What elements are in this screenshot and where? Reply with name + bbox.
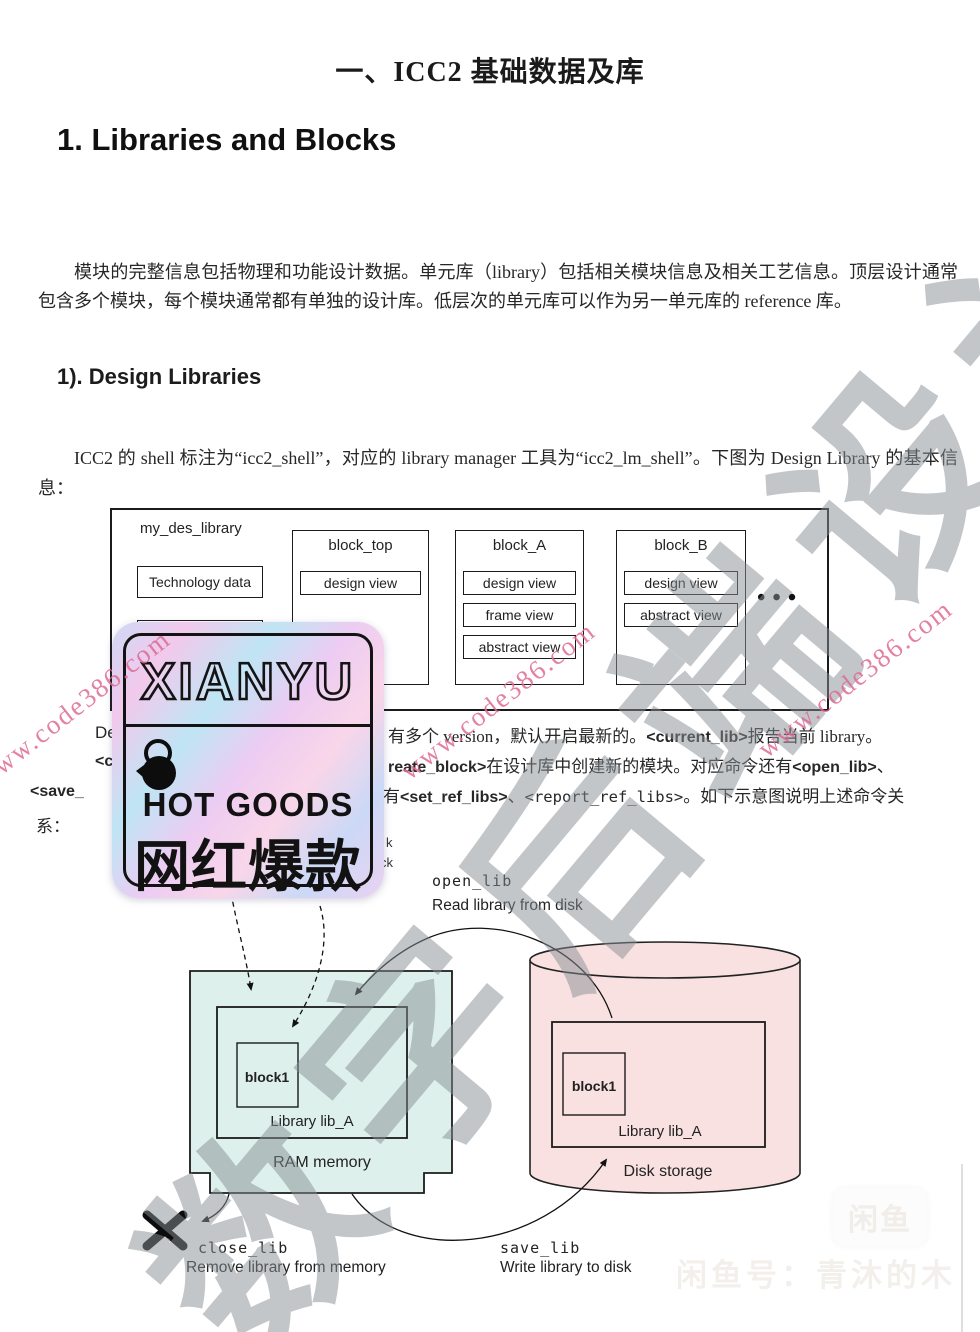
close-lib-desc: Remove library from memory [186, 1259, 386, 1276]
create-block-command: reate_block> [388, 759, 486, 776]
close-lib-command-label: close_lib [198, 1239, 288, 1257]
block-b-box: block_B design view abstract view [616, 530, 746, 685]
para3-text: 有多个 version，默认开启最新的。 [388, 727, 646, 746]
technology-data-box: Technology data [137, 566, 263, 598]
page-edge-line [961, 1164, 963, 1332]
kettle-icon [134, 733, 186, 793]
para3-line3-right: 有<set_ref_libs>、<report_ref_libs>。如下示意图说… [383, 782, 904, 807]
view-box: abstract view [624, 603, 738, 627]
set-ref-libs-command: <set_ref_libs> [400, 789, 508, 806]
xianyu-id-watermark: 闲鱼号：青沐的木 [676, 1250, 956, 1295]
close-x-icon [147, 1215, 183, 1246]
block-a-box: block_A design view frame view abstract … [455, 530, 584, 685]
document-page: 一、ICC2 基础数据及库 1. Libraries and Blocks 模块… [0, 0, 980, 1332]
sticker-brand-text: XIANYU [126, 644, 370, 720]
disk-cylinder-body [530, 960, 800, 1193]
occluded-label-fragment: k [386, 835, 393, 850]
para3-line4: 系： [36, 812, 70, 837]
current-lib-command: <current_lib> [646, 729, 747, 746]
view-box: design view [300, 571, 421, 595]
block-title: block_top [293, 537, 428, 554]
close-lib-arrow [203, 1194, 229, 1221]
block-title: block_A [456, 537, 583, 554]
open-lib-command-label: open_lib [432, 872, 512, 890]
para3-text: 。如下示意图说明上述命令关 [683, 787, 904, 806]
sticker-hot-goods-text: HOT GOODS [126, 786, 370, 824]
disk-library-label: Library lib_A [618, 1123, 701, 1140]
para3-text: 在设计库中创建新的模块。对应命令还有 [486, 757, 792, 776]
save-lib-desc: Write library to disk [500, 1259, 632, 1276]
ellipsis-dots: ••• [757, 585, 803, 612]
xianyu-sticker: XIANYU HOT GOODS 网红爆款 [112, 622, 384, 898]
xianyu-logo-text: 闲鱼 [848, 1195, 912, 1239]
para3-text: 、 [877, 757, 894, 776]
view-box: frame view [463, 603, 576, 627]
doc-title: 一、ICC2 基础数据及库 [0, 50, 980, 90]
disk-block1-label: block1 [572, 1078, 617, 1094]
open-lib-desc: Read library from disk [432, 897, 583, 914]
sticker-chinese-text: 网红爆款 [126, 822, 370, 903]
library-name-label: my_des_library [140, 520, 242, 537]
ram-library-label: Library lib_A [270, 1113, 353, 1130]
report-ref-libs-command: <report_ref_libs> [525, 788, 684, 806]
subsection-heading: 1). Design Libraries [57, 364, 261, 390]
para3-line2-left: <c [95, 753, 113, 771]
view-box: abstract view [463, 635, 576, 659]
para3-text: 报告当前 library。 [748, 727, 883, 746]
para3-line2-right: reate_block>在设计库中创建新的模块。对应命令还有<open_lib>… [388, 752, 894, 777]
ram-block1-label: block1 [245, 1069, 290, 1085]
para3-text: 有 [383, 787, 400, 806]
sticker-inner-frame: XIANYU HOT GOODS 网红爆款 [123, 633, 373, 887]
sticker-bottom-section: HOT GOODS 网红爆款 [126, 728, 370, 885]
paragraph-1: 模块的完整信息包括物理和功能设计数据。单元库（library）包括相关模块信息及… [38, 258, 958, 316]
view-box: design view [624, 571, 738, 595]
para3-line3-left: <save_ [30, 783, 84, 801]
section-heading: 1. Libraries and Blocks [57, 122, 396, 158]
disk-storage-label: Disk storage [624, 1163, 713, 1180]
block-title: block_B [617, 537, 745, 554]
para3-text: 、 [508, 787, 525, 806]
ram-memory-label: RAM memory [273, 1154, 371, 1171]
xianyu-logo-badge: 闲鱼 [833, 1188, 927, 1246]
para3-line1-right: 有多个 version，默认开启最新的。<current_lib>报告当前 li… [388, 722, 882, 747]
open-lib-command: <open_lib> [792, 759, 876, 776]
paragraph-2: ICC2 的 shell 标注为“icc2_shell”，对应的 library… [38, 443, 958, 503]
save-lib-command-label: save_lib [500, 1239, 580, 1257]
view-box: design view [463, 571, 576, 595]
technology-data-label: Technology data [149, 574, 251, 590]
